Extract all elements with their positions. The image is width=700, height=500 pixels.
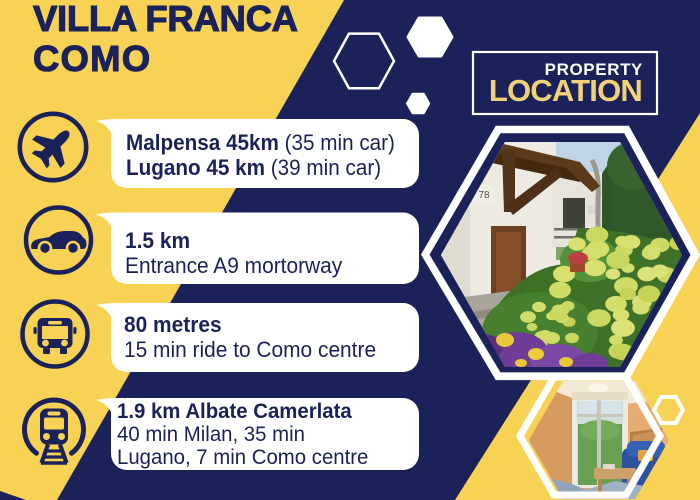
svg-text:78: 78 xyxy=(478,190,490,201)
